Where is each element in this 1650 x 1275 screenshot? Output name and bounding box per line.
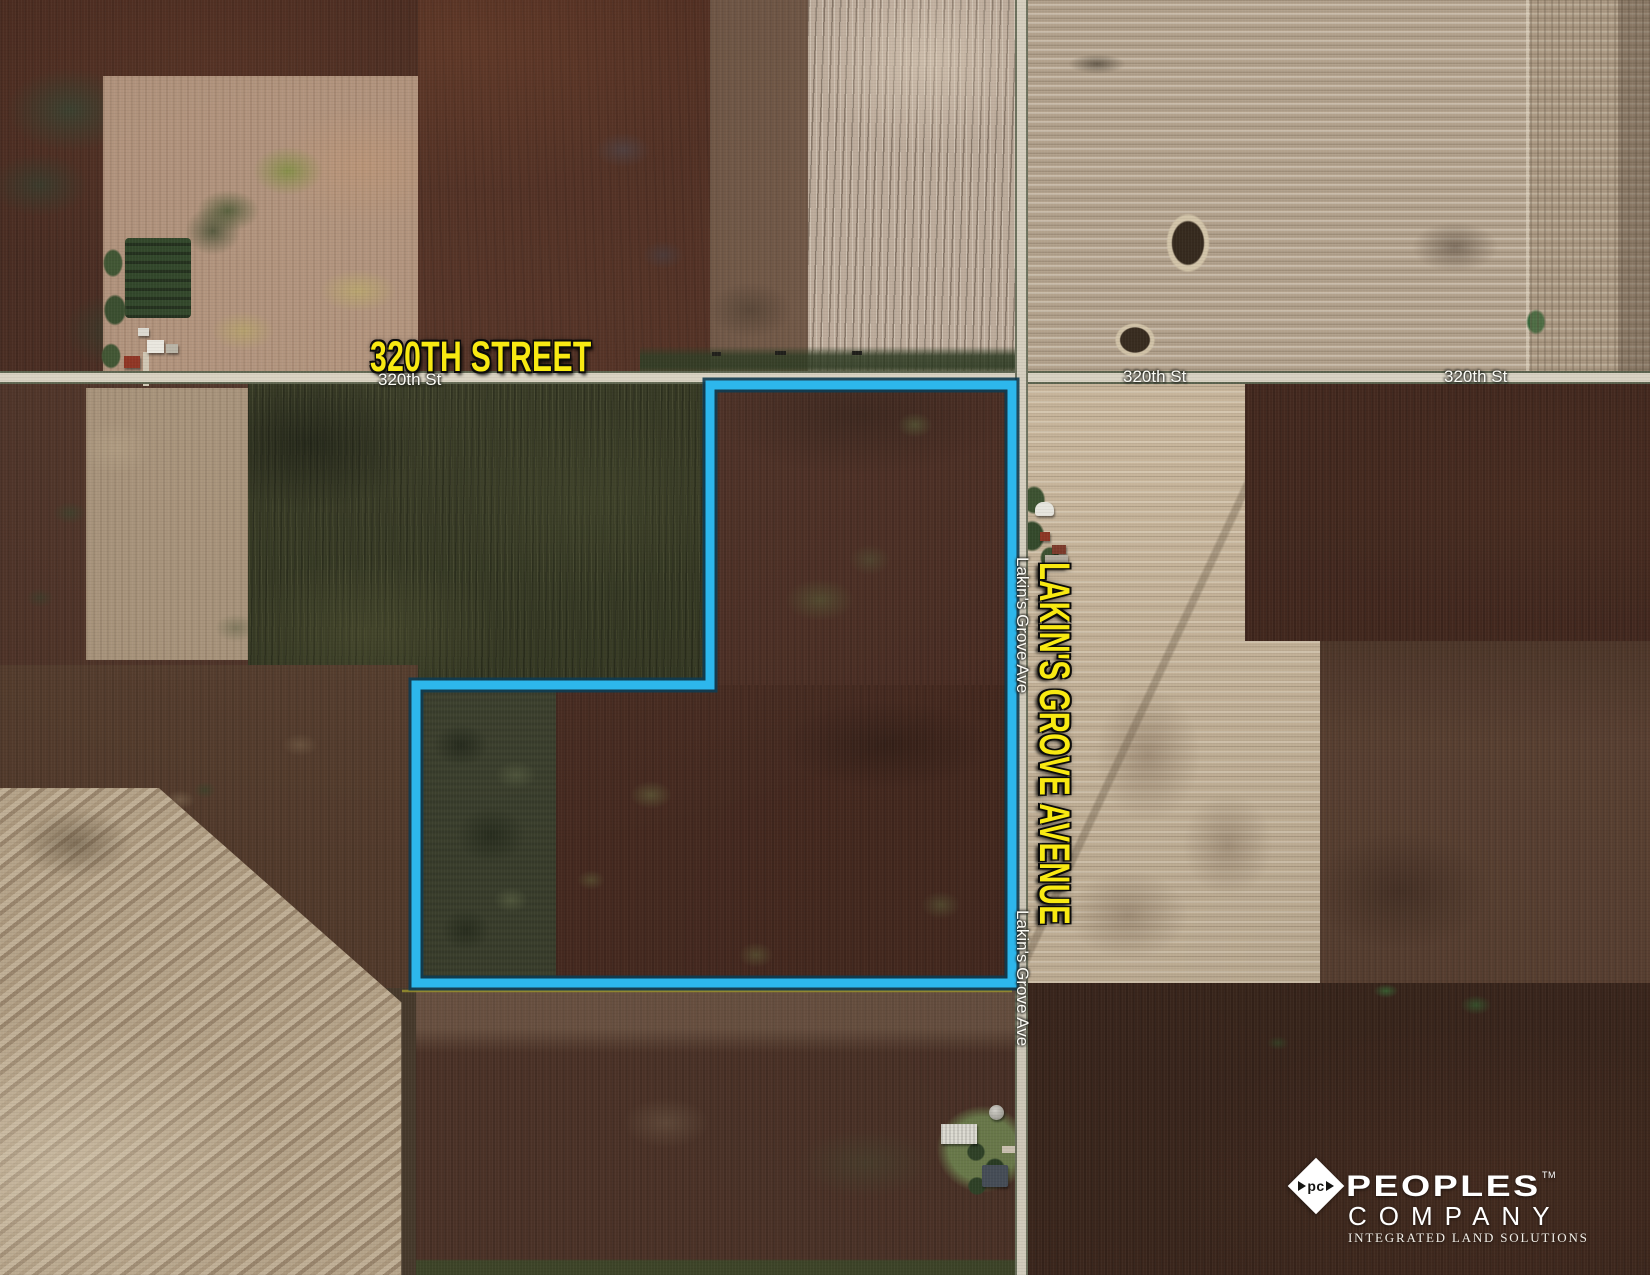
- road-label-320th-st-east: 320th St: [1444, 367, 1507, 387]
- logo-subname: COMPANY: [1348, 1201, 1562, 1232]
- logo-name: PEOPLES: [1346, 1170, 1541, 1204]
- property-boundary: [416, 385, 1012, 983]
- logo-monogram-row: pc: [1288, 1178, 1344, 1194]
- logo-monogram: pc: [1307, 1179, 1324, 1193]
- road-label-320th-st-mid: 320th St: [1123, 367, 1186, 387]
- logo-arrow-icon: [1326, 1181, 1334, 1191]
- road-label-lakins-grove-ave-north: Lakin's Grove Ave: [1012, 557, 1032, 693]
- logo-trademark: TM: [1542, 1170, 1556, 1180]
- boundary-overlay: [0, 0, 1650, 1275]
- road-label-lakins-grove-ave-south: Lakin's Grove Ave: [1012, 910, 1032, 1046]
- peoples-company-logo: pc PEOPLES TM COMPANY INTEGRATED LAND SO…: [1280, 1156, 1580, 1256]
- logo-arrow-tail-icon: [1298, 1181, 1306, 1191]
- road-label-320th-st-west: 320th St: [378, 370, 441, 390]
- satellite-map: 320TH STREET LAKIN'S GROVE AVENUE 320th …: [0, 0, 1650, 1275]
- logo-tagline: INTEGRATED LAND SOLUTIONS: [1348, 1230, 1589, 1246]
- avenue-label: LAKIN'S GROVE AVENUE: [1029, 562, 1078, 925]
